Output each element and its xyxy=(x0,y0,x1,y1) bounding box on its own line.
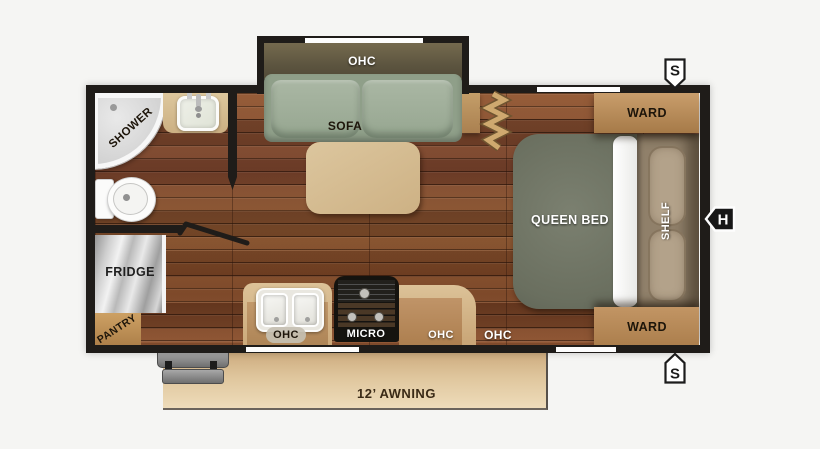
dinette-table xyxy=(306,142,420,214)
shelf-label: SHELF xyxy=(660,202,672,240)
sofa-ohc-label: OHC xyxy=(348,54,376,68)
micro-label: MICRO xyxy=(347,328,386,340)
entry-step-bottom xyxy=(162,369,224,384)
svg-text:H: H xyxy=(718,212,729,229)
bedroom-front-window xyxy=(556,347,616,352)
counter-ohc-label: OHC xyxy=(428,329,454,341)
bedroom-rear-window xyxy=(537,87,620,92)
speaker-marker-front-icon: S xyxy=(666,354,685,383)
sofa-label: SOFA xyxy=(328,119,362,133)
sofa xyxy=(264,74,462,142)
fridge-label: FRIDGE xyxy=(105,265,155,279)
ward-front-label: WARD xyxy=(627,320,667,334)
overhead-ohc-label: OHC xyxy=(484,328,512,342)
ward-rear-label: WARD xyxy=(627,106,667,120)
rv-floorplan: 12’ AWNING xyxy=(0,0,820,449)
speaker-marker-rear-icon: S xyxy=(666,60,685,89)
awning-label: 12’ AWNING xyxy=(357,386,436,401)
kitchen-window xyxy=(246,347,359,352)
sink-ohc-label: OHC xyxy=(273,329,299,341)
hookup-marker-icon: H xyxy=(706,208,734,231)
sofa-cushion xyxy=(362,80,453,138)
slideout-window xyxy=(305,38,423,43)
svg-text:S: S xyxy=(670,366,680,383)
queen-bed-label: QUEEN BED xyxy=(531,213,609,227)
svg-text:S: S xyxy=(670,63,680,80)
